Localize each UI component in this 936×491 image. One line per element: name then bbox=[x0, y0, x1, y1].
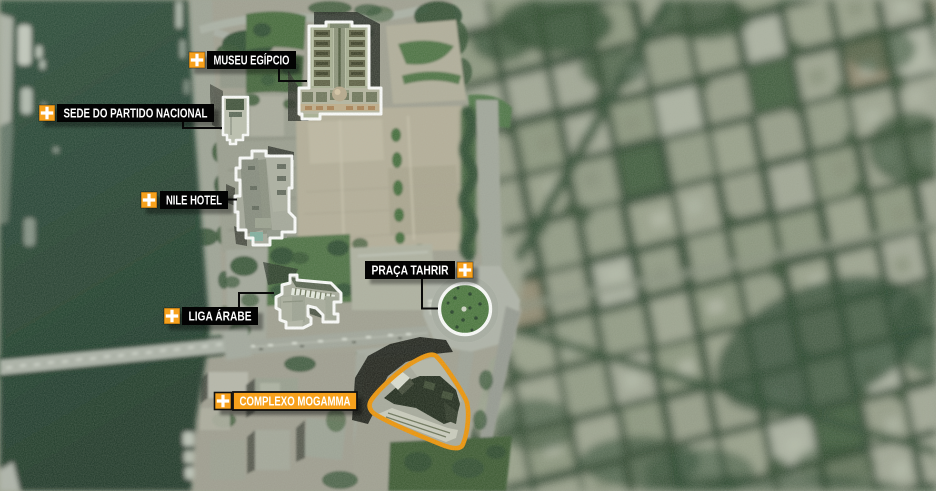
svg-text:MUSEU EGÍPCIO: MUSEU EGÍPCIO bbox=[214, 53, 290, 68]
svg-text:COMPLEXO MOGAMMA: COMPLEXO MOGAMMA bbox=[240, 394, 351, 409]
svg-text:SEDE DO PARTIDO NACIONAL: SEDE DO PARTIDO NACIONAL bbox=[64, 106, 208, 121]
svg-text:LIGA ÁRABE: LIGA ÁRABE bbox=[189, 309, 252, 324]
svg-text:PRAÇA TAHRIR: PRAÇA TAHRIR bbox=[372, 263, 449, 278]
svg-text:NILE HOTEL: NILE HOTEL bbox=[166, 193, 222, 208]
